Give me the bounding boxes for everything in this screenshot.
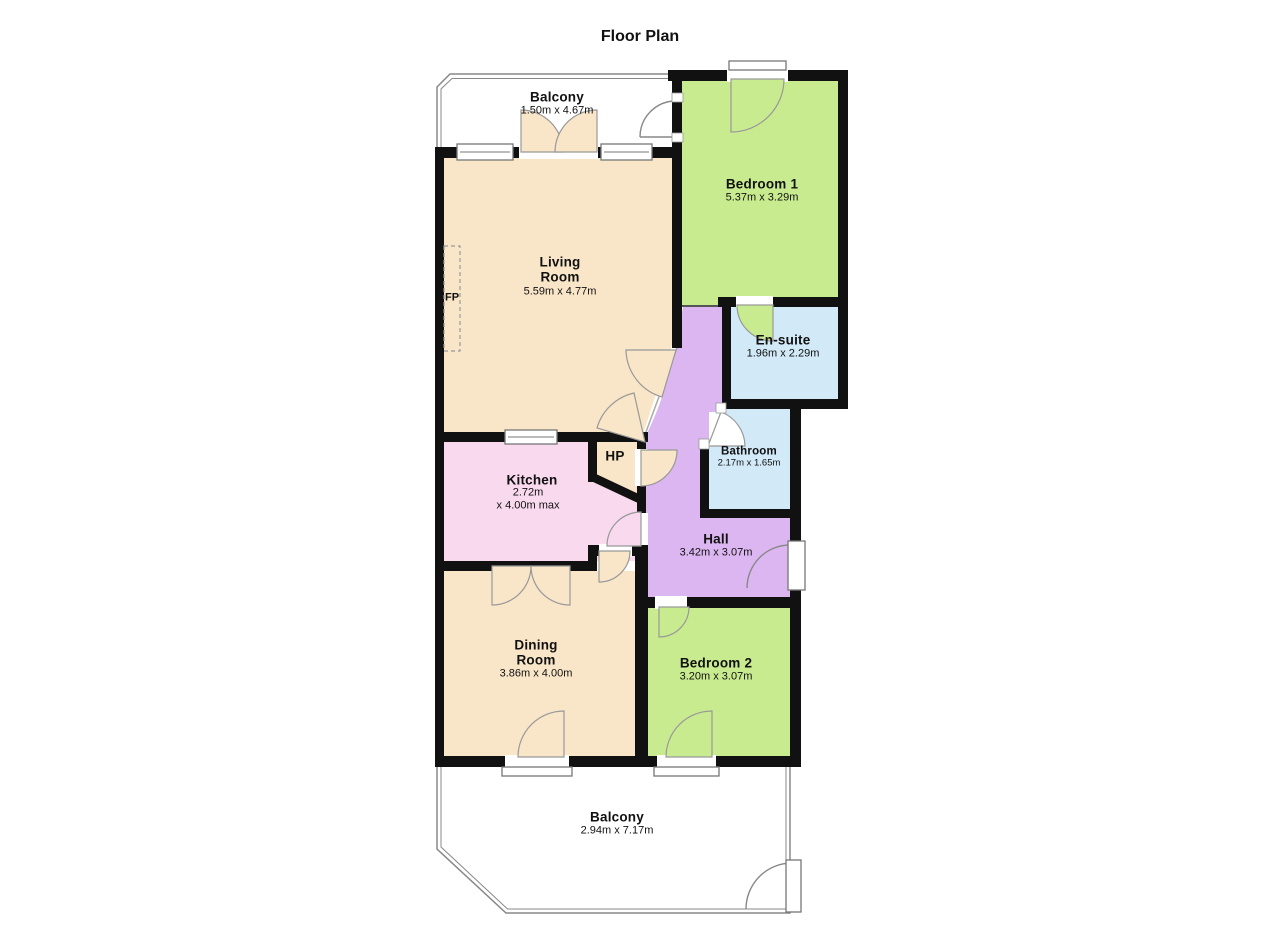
room-dims-dining: 3.86m x 4.00m bbox=[500, 669, 573, 680]
room-dims-bedroom-1: 5.37m x 3.29m bbox=[726, 193, 799, 204]
fireplace-label: FP bbox=[445, 293, 459, 304]
floor-plan-page: Floor Plan Balcony 1.50m x 4.67m Bedroom… bbox=[0, 0, 1280, 930]
room-label-balcony-top: Balcony bbox=[530, 90, 584, 104]
room-label-living-line1: Living bbox=[540, 255, 581, 269]
room-label-living-line2: Room bbox=[540, 270, 579, 284]
room-label-ensuite: En-suite bbox=[756, 333, 811, 347]
room-label-dining-line2: Room bbox=[516, 653, 555, 667]
balcony-bottom-door-frame bbox=[786, 860, 801, 912]
room-label-dining-line1: Dining bbox=[514, 638, 557, 652]
balcony-bottom-door-arc bbox=[746, 863, 792, 909]
bedroom2-balcony-sill bbox=[654, 767, 719, 776]
page-title: Floor Plan bbox=[601, 29, 679, 45]
room-dims-kitchen-line1: 2.72m bbox=[513, 488, 544, 499]
room-dims-kitchen-line2: x 4.00m max bbox=[497, 501, 560, 512]
dining-balcony-sill bbox=[502, 767, 572, 776]
balcony-top-door-arc bbox=[640, 101, 676, 137]
room-dims-living: 5.59m x 4.77m bbox=[524, 287, 597, 298]
room-label-kitchen: Kitchen bbox=[507, 473, 558, 487]
room-dims-bedroom-2: 3.20m x 3.07m bbox=[680, 672, 753, 683]
front-door-frame bbox=[788, 541, 805, 590]
room-label-bedroom-2: Bedroom 2 bbox=[680, 656, 752, 670]
room-label-hp: HP bbox=[605, 449, 624, 463]
room-dims-balcony-top: 1.50m x 4.67m bbox=[521, 106, 594, 117]
room-dims-balcony-bottom: 2.94m x 7.17m bbox=[581, 826, 654, 837]
room-label-bedroom-1: Bedroom 1 bbox=[726, 177, 798, 191]
room-label-bathroom: Bathroom bbox=[721, 446, 777, 458]
room-dims-bathroom: 2.17m x 1.65m bbox=[718, 458, 781, 468]
room-label-balcony-bottom: Balcony bbox=[590, 810, 644, 824]
room-dims-ensuite: 1.96m x 2.29m bbox=[747, 349, 820, 360]
bedroom1-door-sill bbox=[729, 61, 786, 70]
floor-plan-canvas bbox=[0, 0, 1280, 930]
room-label-hall: Hall bbox=[703, 532, 729, 546]
room-dims-hall: 3.42m x 3.07m bbox=[680, 548, 753, 559]
